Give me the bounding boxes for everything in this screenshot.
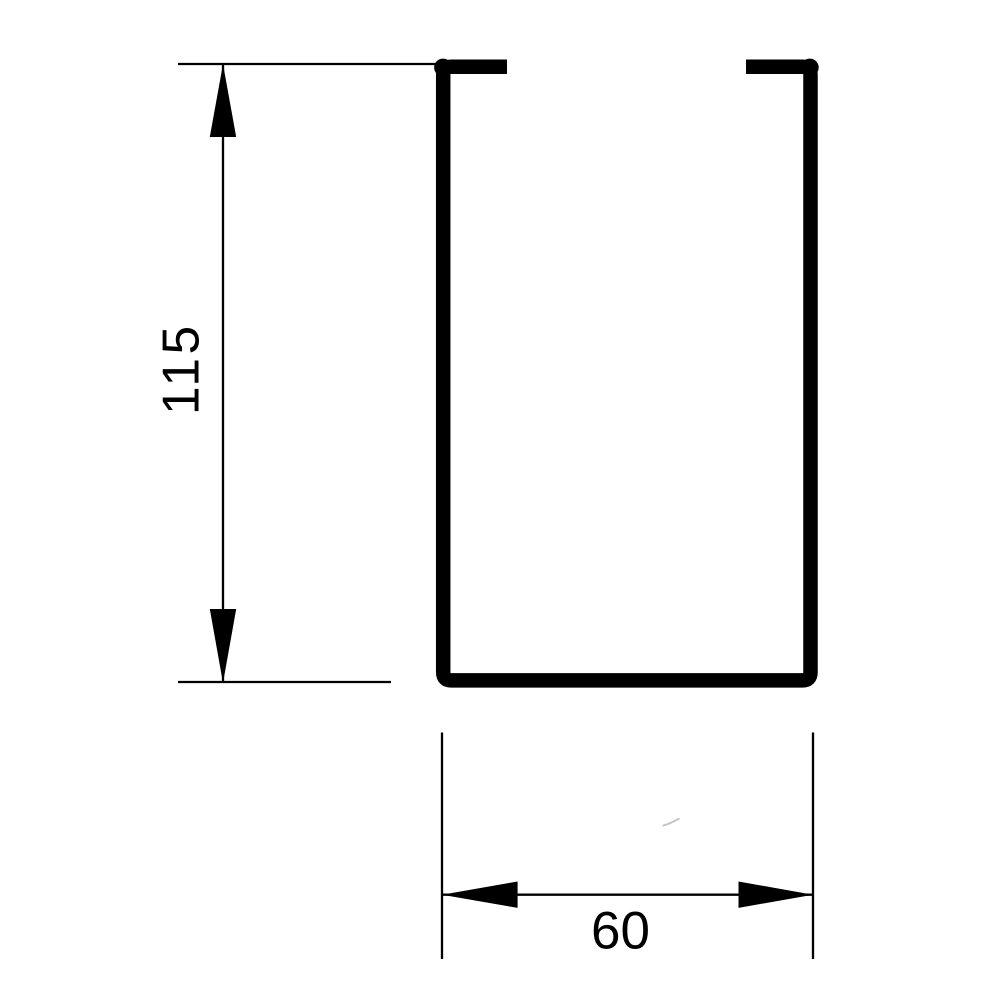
svg-text:60: 60 bbox=[591, 902, 650, 961]
svg-text:115: 115 bbox=[152, 322, 210, 415]
